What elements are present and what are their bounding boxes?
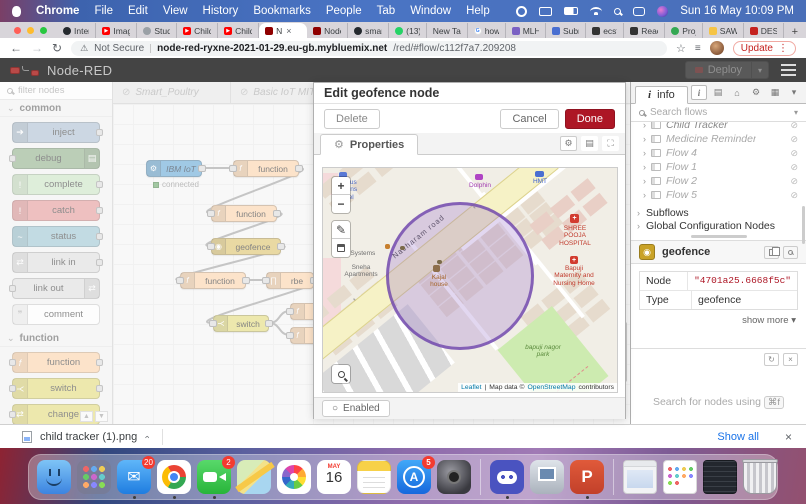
site-favicon (630, 27, 638, 35)
copy-icon (769, 249, 775, 256)
search-nodes-hint: Search for nodes using ⌘f (631, 396, 806, 408)
divider (162, 429, 163, 445)
dialog-tab-bar: ⚙Properties ⚙ ▤ ⛶ (314, 133, 625, 155)
node-palette: filter nodes ⌄common ➔inject debug▤ !com… (0, 82, 113, 424)
running-indicator (213, 496, 216, 499)
node-info-title: geofence (662, 246, 710, 258)
menu-view[interactable]: View (163, 5, 188, 17)
menu-history[interactable]: History (203, 5, 239, 17)
menu-window[interactable]: Window (410, 5, 451, 17)
chevron-right-icon: › (637, 208, 640, 218)
zoom-out-button[interactable]: − (332, 195, 350, 213)
search-icon (788, 250, 793, 255)
flow-icon (651, 191, 661, 199)
node-status: connected (153, 180, 199, 189)
tab-info[interactable]: iinfo (635, 86, 688, 104)
map-edit-controls: ✎ (331, 220, 351, 258)
facetime-icon[interactable]: 2 (197, 460, 231, 494)
link-icon: ⇄ (84, 279, 99, 298)
github-favicon (63, 27, 71, 35)
site-favicon (552, 27, 560, 35)
browser-tab[interactable]: Subr (546, 23, 586, 38)
running-indicator (173, 496, 176, 499)
zoom-window-button[interactable] (40, 27, 47, 34)
bookmark-star-icon[interactable]: ☆ (676, 42, 686, 55)
palette-node-inject[interactable]: ➔inject (12, 122, 100, 143)
globe-favicon (143, 27, 151, 35)
info-icon: i (648, 89, 651, 101)
hmt-icon (535, 171, 544, 177)
minimized-window-app[interactable] (663, 460, 697, 494)
show-more-link[interactable]: show more ▾ (631, 310, 806, 326)
deploy-options-caret[interactable]: ▾ (751, 62, 768, 78)
browser-tab[interactable]: Node (307, 23, 348, 38)
sidebar-scrollbar[interactable] (802, 206, 805, 244)
site-favicon (671, 27, 679, 35)
window-controls (0, 27, 57, 38)
app-title: Node-RED (47, 63, 112, 78)
chevron-right-icon[interactable]: › (643, 190, 646, 200)
maps-icon[interactable] (237, 460, 271, 494)
flow-list-item[interactable]: ›Child Tracker⊘ (631, 122, 806, 132)
info-actions: ↻ × (631, 349, 806, 370)
flow-list: ›Child Tracker⊘ ›Medicine Reminder⊘ ›Flo… (631, 122, 806, 206)
running-indicator (586, 496, 589, 499)
search-flows-input[interactable]: Search flows ▾ (631, 104, 806, 122)
deploy-button[interactable]: Deploy ▾ (685, 61, 769, 79)
screen-record-icon[interactable] (516, 6, 527, 17)
menu-help[interactable]: Help (466, 5, 490, 17)
launchpad-icon[interactable] (77, 460, 111, 494)
browser-tab[interactable]: MLH (506, 23, 546, 38)
node-info-table: Node "4701a25.6668f5c" Type geofence (639, 271, 798, 310)
reload-button[interactable]: ↻ (52, 42, 62, 54)
search-icon (338, 371, 345, 378)
disabled-icon: ⊘ (790, 162, 798, 173)
flow-node-ibm-iot[interactable]: ⚙IBM IoT (146, 160, 202, 177)
flow-icon (651, 177, 661, 185)
config-tab-icon[interactable]: ⚙ (748, 85, 764, 100)
menu-bookmarks[interactable]: Bookmarks (253, 5, 311, 17)
map-label-kajal: Kajal house (425, 274, 453, 289)
scroll-down-button[interactable]: ▼ (95, 411, 108, 422)
youtube-favicon: ▶ (102, 27, 110, 35)
node-settings-button[interactable]: ⚙ (560, 136, 577, 151)
photos-icon[interactable] (277, 460, 311, 494)
geofence-circle[interactable] (386, 202, 534, 350)
node-red-favicon (313, 27, 321, 35)
palette-node-switch[interactable]: Yswitch (12, 378, 100, 399)
chevron-down-icon: ▾ (794, 108, 798, 117)
leaflet-link[interactable]: Leaflet (461, 384, 481, 391)
keyboard-shortcut-badge: ⌘f (764, 396, 784, 409)
node-red-favicon (265, 27, 273, 35)
debug-tab-icon[interactable]: ⌂ (729, 85, 745, 100)
context-tab-icon[interactable]: ▦ (767, 85, 783, 100)
delete-geofence-button[interactable] (332, 239, 350, 257)
omnibox[interactable]: ⚠ Not Secure node-red-ryxne-2021-01-29.e… (71, 41, 667, 56)
download-options-caret[interactable]: › (142, 435, 152, 438)
geofence-node-icon: ◉ (639, 244, 655, 260)
description-button[interactable]: ▤ (581, 136, 598, 151)
map-attribution: Leaflet | Map data © OpenStreetMap contr… (458, 383, 617, 392)
flow-node-function[interactable]: ffunction (180, 272, 246, 289)
chevron-right-icon[interactable]: › (643, 122, 646, 130)
map-label-hospital: SHREE POOJA HOSPITAL (554, 225, 596, 247)
reading-list-icon[interactable]: ≡ (695, 43, 701, 54)
camera-icon (437, 260, 442, 264)
node-id-value: "4701a25.6668f5c" (688, 272, 797, 290)
flow-icon (651, 122, 661, 129)
flow-icon (651, 163, 661, 171)
siri-icon[interactable] (657, 6, 668, 17)
show-all-button[interactable]: Show all (707, 429, 769, 445)
flow-node-rbe[interactable]: ∏rbe (266, 272, 314, 289)
chrome-update-button[interactable]: Update ⋮ (733, 41, 796, 56)
hospital-icon: + (570, 214, 579, 223)
edit-geofence-dialog: Edit geofence node Delete Cancel Done ⚙P… (313, 82, 626, 419)
security-label[interactable]: Not Secure (94, 43, 144, 54)
browser-tab[interactable]: ▶Child (218, 23, 259, 38)
find-node-button[interactable] (783, 246, 798, 259)
browser-tab[interactable]: Stud (137, 23, 177, 38)
browser-tab-active[interactable]: N× (259, 23, 307, 38)
palette-node-function[interactable]: ffunction (12, 352, 100, 373)
flow-list-item[interactable]: ›Flow 5⊘ (631, 188, 806, 202)
flow-icon (651, 149, 661, 157)
menu-file[interactable]: File (94, 5, 113, 17)
battery-icon[interactable] (564, 7, 578, 15)
mlh-favicon (512, 27, 520, 35)
sidebar-options-caret[interactable]: ▾ (786, 85, 802, 100)
info-sidebar: iinfo i ▤ ⌂ ⚙ ▦ ▾ Search flows ▾ ›Child … (630, 82, 806, 424)
kebab-menu-icon[interactable]: ⋮ (778, 43, 788, 54)
refresh-button[interactable]: ↻ (764, 353, 779, 366)
browser-tab[interactable]: SAW (703, 23, 744, 38)
dialog-footer: ○Enabled (314, 397, 625, 419)
url-path[interactable]: /red/#flow/c112f7a7.209208 (393, 43, 516, 54)
osm-link[interactable]: OpenStreetMap (528, 384, 576, 391)
palette-node-complete[interactable]: !complete (12, 174, 100, 195)
map-label-dolphin: Dolphin (465, 182, 495, 189)
screen: Chrome File Edit View History Bookmarks … (0, 0, 806, 504)
disabled-icon: ⊘ (790, 148, 798, 159)
table-row: Node "4701a25.6668f5c" (640, 272, 797, 291)
map-search-button[interactable] (332, 365, 350, 383)
scroll-up-button[interactable]: ▲ (80, 411, 93, 422)
site-favicon (709, 27, 717, 35)
disabled-icon: ⊘ (790, 134, 798, 145)
map-label-park: bapuji nagor park (523, 344, 563, 359)
file-icon (22, 431, 32, 443)
dialog-buttons: Delete Cancel Done (314, 104, 625, 133)
node-red-header: Node-RED Deploy ▾ (0, 58, 806, 82)
site-favicon (592, 27, 600, 35)
facetime-badge: 2 (222, 456, 235, 469)
gear-icon: ⚙ (334, 138, 344, 151)
node-red-logo (10, 64, 39, 76)
map-label-hmt: HMT (531, 178, 549, 185)
dialog-body: Nacharam road › › St pious womens hostel… (314, 155, 625, 397)
chrome-tab-strip: Inter ▶Imag Stud ▶Child ▶Child N× Node s… (0, 22, 806, 38)
spotlight-icon[interactable] (614, 8, 621, 15)
app-store-badge: 5 (422, 456, 435, 469)
map-label-maternity: Bapuji Maternity and Nursing Home (551, 265, 597, 287)
copy-button[interactable] (764, 246, 779, 259)
disabled-icon: ⊘ (122, 87, 130, 98)
google-favicon: G (474, 27, 482, 35)
flow-list-item[interactable]: ›Flow 1⊘ (631, 160, 806, 174)
desktop-wallpaper: ✉20 2 MAY16 A5 P (0, 448, 806, 504)
zoom-in-button[interactable]: + (332, 177, 350, 195)
minimize-window-button[interactable] (27, 27, 34, 34)
palette-node-debug[interactable]: debug▤ (12, 148, 100, 169)
enabled-toggle[interactable]: ○Enabled (322, 400, 390, 417)
power-icon: ○ (332, 403, 338, 414)
search-icon (7, 88, 13, 94)
minimized-window-terminal[interactable] (703, 460, 737, 494)
sidebar-tab-bar: iinfo i ▤ ⌂ ⚙ ▦ ▾ (631, 82, 806, 104)
complete-icon: ! (13, 175, 28, 194)
section-subflows[interactable]: ›Subflows (631, 206, 806, 219)
powerpoint-icon[interactable]: P (570, 460, 604, 494)
disabled-icon: ⊘ (790, 122, 798, 131)
keyboard-icon[interactable] (539, 7, 552, 16)
browser-tab[interactable]: Reac (624, 23, 665, 38)
warning-icon: ⚠ (80, 43, 88, 54)
youtube-favicon: ▶ (224, 27, 232, 35)
palette-filter-input[interactable]: filter nodes (0, 82, 112, 100)
palette-node-catch[interactable]: !catch (12, 200, 100, 221)
expand-button[interactable]: ⛶ (602, 136, 619, 151)
comment-icon: ❞ (13, 305, 28, 324)
ibm-iot-icon: ⚙ (147, 161, 161, 176)
notes-icon[interactable] (357, 460, 391, 494)
palette-category-common[interactable]: ⌄common (0, 100, 112, 117)
tab-close-icon[interactable]: × (286, 26, 291, 36)
profile-avatar[interactable] (710, 41, 724, 55)
horizontal-scrollbar[interactable] (691, 235, 747, 238)
download-filename[interactable]: child tracker (1).png (40, 431, 137, 443)
flow-list-item[interactable]: ›Flow 4⊘ (631, 146, 806, 160)
menu-people[interactable]: People (326, 5, 362, 17)
flow-list-item[interactable]: ›Flow 2⊘ (631, 174, 806, 188)
mail-badge: 20 (142, 456, 155, 469)
map-label-sneha: Sneha Apartments (335, 264, 387, 279)
chevron-down-icon: ⌄ (7, 103, 15, 114)
dock-separator (480, 459, 481, 495)
debug-icon: ▤ (84, 149, 99, 168)
flow-node-geofence[interactable]: ◉geofence (211, 238, 281, 255)
catch-icon: ! (13, 201, 28, 220)
chrome-icon[interactable] (157, 460, 191, 494)
chevron-right-icon[interactable]: › (643, 176, 646, 186)
map-zoom-controls: + − (331, 176, 351, 214)
mail-icon[interactable]: ✉20 (117, 460, 151, 494)
running-indicator (133, 496, 136, 499)
palette-category-function[interactable]: ⌄function (0, 330, 112, 347)
close-download-bar-button[interactable]: × (785, 430, 792, 444)
table-row: Type geofence (640, 291, 797, 309)
omnibox-separator (150, 44, 151, 53)
section-global-config[interactable]: ›Global Configuration Nodes (631, 219, 806, 232)
chevron-right-icon[interactable]: › (643, 162, 646, 172)
forward-button[interactable]: → (31, 42, 43, 54)
status-icon: ~ (13, 227, 28, 246)
info-tab-icon[interactable]: i (691, 85, 707, 100)
github-favicon (354, 27, 362, 35)
trash-icon (337, 244, 345, 252)
url-host[interactable]: node-red-ryxne-2021-01-29.eu-gb.mybluemi… (157, 43, 387, 54)
browser-tab[interactable]: Proj (665, 23, 703, 38)
disabled-icon: ⊘ (790, 176, 798, 187)
photo-booth-icon[interactable] (530, 460, 564, 494)
maternity-icon: + (570, 256, 578, 264)
close-window-button[interactable] (14, 27, 21, 34)
flow-node-switch[interactable]: Yswitch (213, 315, 269, 332)
help-tab-icon[interactable]: ▤ (710, 85, 726, 100)
whatsapp-favicon (395, 27, 403, 35)
node-info-header: ◉ geofence (631, 240, 806, 264)
youtube-favicon: ▶ (183, 27, 191, 35)
new-tab-button[interactable]: + (784, 26, 806, 38)
browser-tab[interactable]: Ghow (468, 23, 506, 38)
edit-geofence-button[interactable]: ✎ (332, 221, 350, 239)
search-icon (639, 110, 645, 116)
menu-edit[interactable]: Edit (128, 5, 148, 17)
app-store-icon[interactable]: A5 (397, 460, 431, 494)
flow-list-item[interactable]: ›Medicine Reminder⊘ (631, 132, 806, 146)
dolphin-icon (475, 174, 483, 180)
palette-scroll-arrows: ▲ ▼ (80, 411, 108, 422)
flow-tab[interactable]: ⊘Smart_Poultry (113, 82, 231, 103)
back-button[interactable]: ← (10, 42, 22, 54)
site-favicon (750, 27, 758, 35)
connected-dot (153, 182, 159, 188)
link-icon: ⇄ (13, 253, 28, 272)
browser-tab[interactable]: New Tab (427, 23, 468, 38)
deploy-icon (695, 67, 703, 73)
camera-icon (400, 246, 405, 250)
flow-icon (651, 135, 661, 143)
download-bar: child tracker (1).png › Show all × (0, 424, 806, 448)
minimized-window-chrome[interactable] (623, 460, 657, 494)
bar-icon (385, 244, 390, 249)
wifi-icon[interactable] (590, 7, 602, 16)
browser-tab[interactable]: DES (744, 23, 784, 38)
discord-icon[interactable] (490, 460, 524, 494)
browser-tab[interactable]: smar (348, 23, 389, 38)
main-menu-icon[interactable] (781, 69, 796, 72)
system-preferences-icon[interactable] (437, 460, 471, 494)
close-info-button[interactable]: × (783, 353, 798, 366)
disabled-icon: ⊘ (240, 87, 248, 98)
delete-button[interactable]: Delete (324, 109, 380, 129)
inject-icon: ➔ (13, 123, 28, 142)
done-button[interactable]: Done (565, 109, 615, 129)
chrome-url-bar: ← → ↻ ⚠ Not Secure node-red-ryxne-2021-0… (0, 38, 806, 58)
tab-properties[interactable]: ⚙Properties (320, 134, 418, 155)
running-indicator (506, 496, 509, 499)
chevron-right-icon: › (637, 221, 640, 231)
menu-tab[interactable]: Tab (377, 5, 396, 17)
browser-tab[interactable]: ▶Imag (96, 23, 137, 38)
disabled-icon: ⊘ (790, 190, 798, 201)
dock-separator (613, 459, 614, 495)
kajal-house-icon (433, 265, 440, 272)
calendar-icon[interactable]: MAY16 (317, 460, 351, 494)
palette-node-comment[interactable]: ❞comment (12, 304, 100, 325)
macos-dock: ✉20 2 MAY16 A5 P (28, 454, 778, 500)
apple-icon[interactable] (12, 6, 21, 17)
geofence-map[interactable]: Nacharam road › › St pious womens hostel… (322, 167, 618, 393)
chevron-down-icon: ⌄ (7, 333, 15, 344)
cancel-button[interactable]: Cancel (500, 109, 558, 129)
palette-node-status[interactable]: ~status (12, 226, 100, 247)
macos-menu-bar: Chrome File Edit View History Bookmarks … (0, 0, 806, 22)
finder-icon[interactable] (37, 460, 71, 494)
trash-icon[interactable] (743, 460, 777, 494)
browser-tab[interactable]: ecst (586, 23, 624, 38)
palette-node-link-out[interactable]: link out⇄ (12, 278, 100, 299)
download-item[interactable]: child tracker (1).png › (14, 429, 156, 445)
map-search-control (331, 364, 351, 384)
menu-bar-clock[interactable]: Sun 16 May 10:09 PM (680, 5, 794, 17)
browser-tab[interactable]: Inter (57, 23, 96, 38)
control-center-icon[interactable] (633, 7, 645, 16)
palette-node-link-in[interactable]: ⇄link in (12, 252, 100, 273)
browser-tab[interactable]: ▶Child (177, 23, 218, 38)
browser-tab[interactable]: (13) (389, 23, 427, 38)
chevron-right-icon[interactable]: › (643, 148, 646, 158)
dialog-title: Edit geofence node (314, 83, 625, 104)
flow-node-function[interactable]: ffunction (233, 160, 299, 177)
main-region: filter nodes ⌄common ➔inject debug▤ !com… (0, 82, 806, 424)
chevron-right-icon[interactable]: › (643, 134, 646, 144)
flow-node-function[interactable]: ffunction (211, 205, 277, 222)
menu-chrome[interactable]: Chrome (36, 5, 79, 17)
